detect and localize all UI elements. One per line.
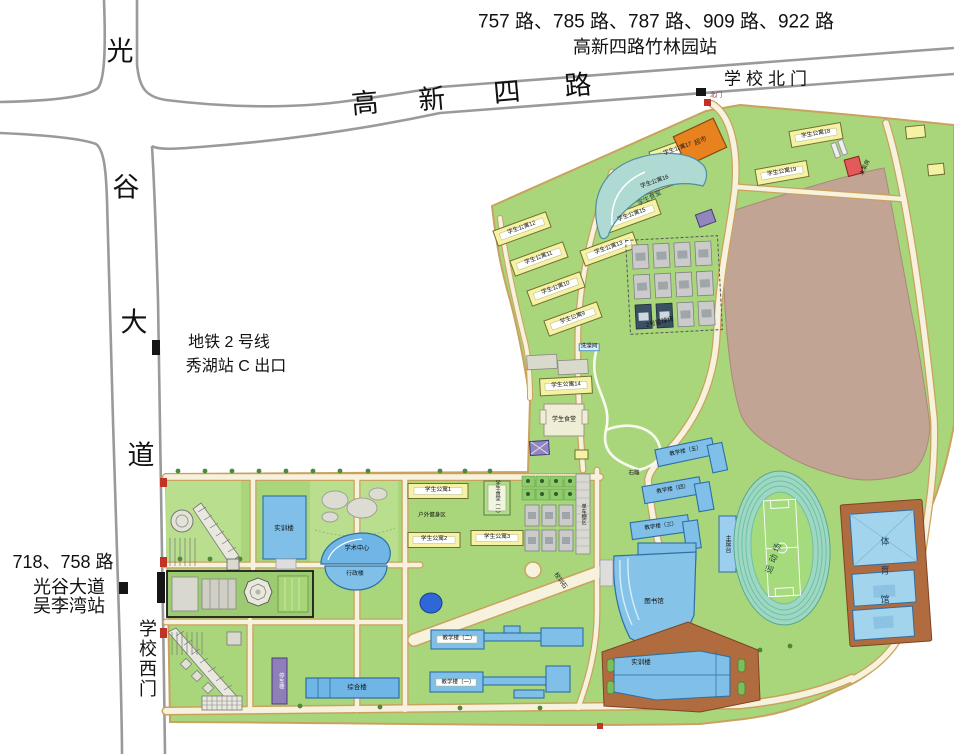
- dorm-s2-label: 学生公寓2: [421, 537, 447, 543]
- training-west-label: 实训楼: [274, 526, 294, 533]
- road-h-char-1: 高: [350, 89, 379, 118]
- road-h-char-2: 新: [417, 85, 446, 114]
- parking-building-label: 停车楼: [277, 673, 283, 690]
- road-v-char-4: 道: [128, 443, 155, 470]
- mid-purple-building: [530, 440, 550, 455]
- dorm-s1-label: 学生公寓1: [425, 488, 451, 494]
- campus-map: 757 路、785 路、787 路、909 路、922 路 高新四路竹林园站 学…: [0, 0, 954, 754]
- bus-stop-north-label: 高新四路竹林园站: [573, 38, 717, 56]
- gymnasium-label: 体育馆: [880, 537, 889, 624]
- road-v-char-1: 光: [107, 39, 134, 66]
- library-label: 图书馆: [644, 599, 664, 606]
- admin-building-label: 行政楼: [346, 572, 363, 578]
- rostrum-label: 主席台: [724, 535, 730, 553]
- bus-routes-west-label: 718、758 路: [12, 553, 113, 571]
- training-west-building: [263, 496, 306, 569]
- bus-stop-west-label: 吴李湾站: [33, 597, 105, 615]
- mid-gray-building-1: [527, 354, 558, 370]
- training-south-label: 实训楼: [631, 660, 651, 667]
- bus-avenue-west-label: 光谷大道: [33, 578, 105, 596]
- small-building-ne-1: [905, 125, 925, 139]
- roundabout: [525, 562, 541, 578]
- complex-building-label: 综合楼: [347, 685, 367, 692]
- teach-1-label: 教学楼（一）: [441, 680, 474, 686]
- west-gate-label: 学校西门: [138, 619, 156, 699]
- canteen-mid-label: 学生食堂: [552, 417, 576, 423]
- fitness-area-label: 户外健身区: [418, 513, 446, 519]
- road-h-char-3: 四: [492, 78, 521, 107]
- sculpture-label: 石雕: [628, 471, 639, 477]
- north-gate-small-label: 北门: [710, 93, 722, 99]
- canteen-1-label: 学生食堂（一）: [494, 480, 499, 516]
- road-v-char-3: 大: [121, 310, 148, 337]
- pavilion-garden: [167, 571, 313, 617]
- bus-routes-north-label: 757 路、785 路、787 路、909 路、922 路: [478, 13, 834, 32]
- pond: [420, 593, 442, 613]
- teach-2-label: 教学楼（二）: [442, 636, 475, 642]
- road-h-char-4: 路: [563, 71, 592, 100]
- academic-center-label: 学术中心: [345, 546, 370, 552]
- metro-line-label: 地铁 2 号线: [188, 335, 270, 351]
- small-building-ne-2: [928, 163, 945, 176]
- north-gate-label: 学校北门: [724, 71, 812, 88]
- metro-exit-label: 秀湖站 C 出口: [186, 359, 286, 375]
- small-yellow-building: [575, 450, 588, 459]
- bike-shed-label: 单车棚区: [580, 504, 585, 525]
- bath-label: 洗澡间: [579, 343, 600, 351]
- dorm-s3-label: 学生公寓3: [484, 535, 510, 541]
- mid-gray-building-2: [558, 359, 589, 375]
- road-v-char-2: 谷: [113, 175, 140, 202]
